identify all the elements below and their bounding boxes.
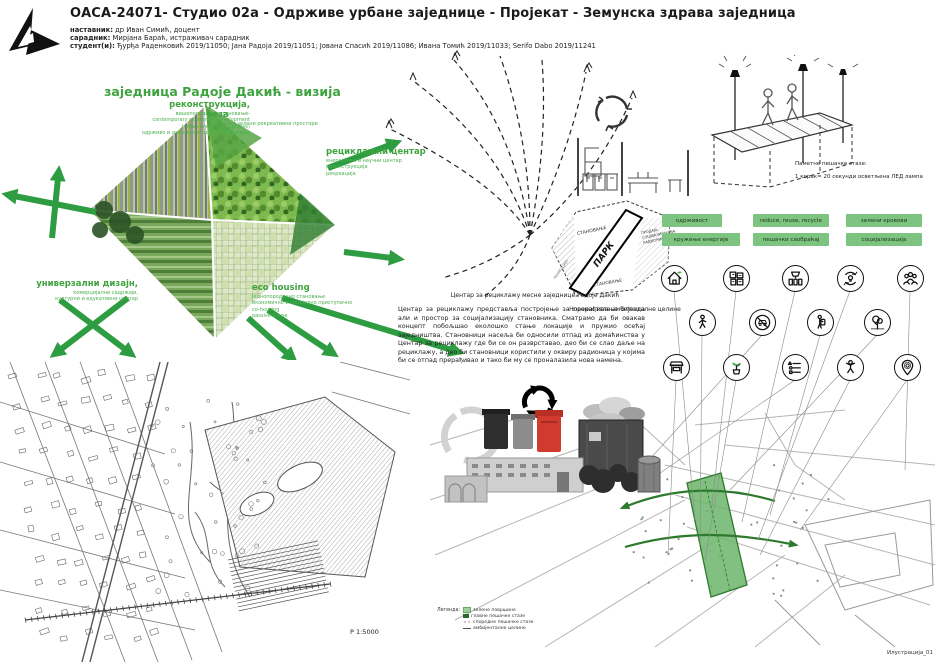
- legend-swatch-secondary-path: [463, 620, 471, 624]
- poster-title: ОАСА-24071- Студио 02а - Одрживе урбане …: [70, 6, 796, 21]
- car-free-icon: [749, 309, 776, 336]
- zone-housing-top-label: СТАНОВАЊЕ: [576, 225, 607, 237]
- connection-line: заједница: [207, 127, 357, 134]
- legend-label: споредне пешачке стазе: [473, 620, 533, 625]
- vision-title: заједница Радоје Дакић - визија: [100, 84, 345, 99]
- eco-backpack-icon: [807, 309, 834, 336]
- reduce-reuse-recycle-icon: [782, 354, 809, 381]
- map-scale-label: Р 1:5000: [350, 628, 379, 636]
- universal-design-line: културни и едукативни центар: [10, 296, 138, 303]
- legend-item: амбијенталне целине: [463, 625, 533, 631]
- legend-swatch-main-path: [463, 614, 469, 618]
- legend-label: амбијенталне целине: [473, 626, 526, 631]
- legend-item: споредне пешачке стазе: [463, 619, 533, 625]
- principle-chip-1: одрживост: [662, 214, 722, 227]
- teacher-label: наставник:: [70, 26, 113, 34]
- principle-chip-5: пешачки саобраћај: [753, 233, 829, 246]
- active-person-icon: [837, 354, 864, 381]
- teacher-name: др Иван Симић, доцент: [115, 26, 200, 34]
- principle-chip-2: reduce, reuse, recycle: [753, 214, 829, 227]
- connection-heading: веза: [207, 110, 357, 121]
- sprout-icon: [723, 354, 750, 381]
- legend-label: зелене површине: [473, 608, 516, 613]
- location-pin-icon: [894, 354, 921, 381]
- principle-chip-4: кружење енергије: [662, 233, 740, 246]
- legend-swatch-green-area: [463, 607, 471, 613]
- students-line: студент(и): Ђурђа Раденковић 2019/11050;…: [70, 42, 596, 50]
- associate-line: сарадник: Мирјана Бараћ, истраживач сара…: [70, 34, 250, 42]
- associate-label: сарадник:: [70, 34, 110, 42]
- principle-chip-3: зелени кровови: [846, 214, 922, 227]
- smart-path-caption: Паметне пешачке стазе: 1 корак= 20 секун…: [795, 161, 940, 181]
- market-icon: [663, 354, 690, 381]
- community-icon: [897, 265, 924, 292]
- recycling-collage: [437, 378, 672, 518]
- legend-swatch-ambient-unit: [463, 628, 471, 629]
- smart-path-caption-text: 1 корак= 20 секунди осветљена ЛЕД лампа: [795, 174, 940, 181]
- map-legend: Легенда: зелене површинеглавне пешачке с…: [437, 607, 552, 631]
- vision-label-universal-design: универзални дизајн, комерцијални садржај…: [10, 279, 138, 303]
- associate-name: Мирјана Бараћ, истраживач сарадник: [113, 34, 250, 42]
- legend-item: главне пешачке стазе: [463, 613, 533, 619]
- legend-label: главне пешачке стазе: [471, 614, 525, 619]
- faculty-logo-icon: [6, 6, 62, 56]
- waste-sorting-icon: [782, 265, 809, 292]
- site-plan-map: [0, 362, 410, 662]
- tree-park-icon: [864, 309, 891, 336]
- illustration-number: Илустрација_01: [853, 650, 933, 656]
- legend-title: Легенда:: [437, 608, 460, 631]
- students-names: Ђурђа Раденковић 2019/11050; Јана Радоја…: [117, 42, 596, 50]
- eco-house-icon: [661, 265, 688, 292]
- project-poster: ОАСА-24071- Студио 02а - Одрживе урбане …: [0, 0, 940, 671]
- teacher-line: наставник: др Иван Симић, доцент: [70, 26, 200, 34]
- eco-housing-line: passive house: [252, 313, 402, 320]
- vision-label-connection: веза централни зелени рекреативни просто…: [207, 110, 357, 134]
- trash-bins-graphic: [482, 409, 563, 452]
- energy-cycle-icon: [837, 265, 864, 292]
- principle-chip-6: социјализација: [846, 233, 922, 246]
- recycled-materials-icon: [723, 265, 750, 292]
- pedestrian-icon: [689, 309, 716, 336]
- students-label: студент(и):: [70, 42, 115, 50]
- smart-path-caption-title: Паметне пешачке стазе:: [795, 161, 940, 168]
- legend-items: зелене површинеглавне пешачке стазеспоре…: [463, 607, 533, 631]
- universal-design-heading: универзални дизајн,: [10, 279, 138, 290]
